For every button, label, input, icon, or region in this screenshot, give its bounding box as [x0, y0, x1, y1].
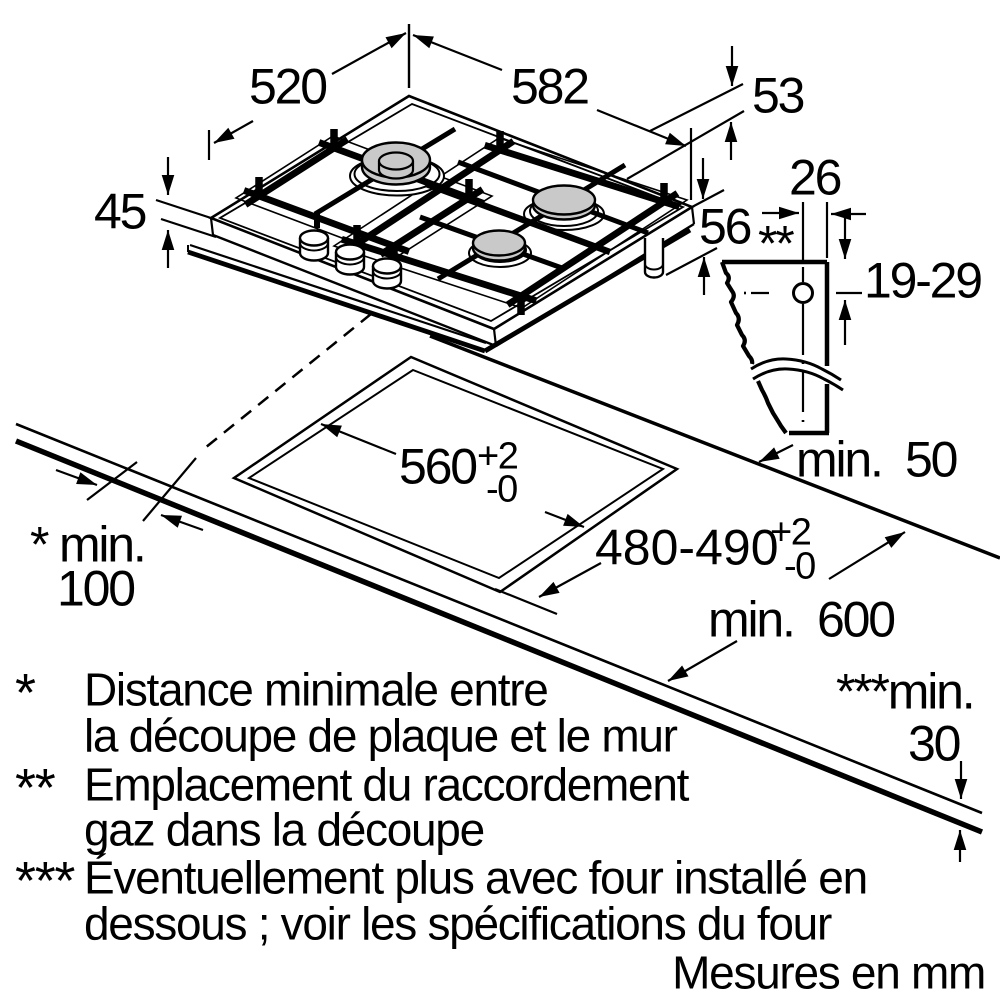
svg-text:gaz dans la découpe: gaz dans la découpe	[84, 804, 484, 856]
svg-text:dessous ; voir les spécificati: dessous ; voir les spécifications du fou…	[84, 898, 832, 950]
svg-text:Distance minimale entre: Distance minimale entre	[84, 664, 548, 716]
svg-text:-0: -0	[486, 469, 517, 511]
svg-text:56: 56	[699, 199, 751, 255]
svg-text:582: 582	[511, 59, 588, 115]
svg-text:***: ***	[15, 851, 75, 911]
svg-text:*: *	[15, 663, 36, 723]
svg-text:***min.: ***min.	[836, 664, 973, 720]
svg-text:100: 100	[57, 561, 134, 617]
svg-text:19-29: 19-29	[864, 253, 981, 309]
svg-text:**: **	[758, 216, 794, 272]
svg-text:min. 600: min. 600	[708, 592, 894, 648]
svg-text:min. 50: min. 50	[796, 432, 957, 488]
svg-text:560: 560	[399, 439, 476, 495]
svg-text:53: 53	[752, 68, 804, 124]
svg-text:-0: -0	[784, 546, 815, 588]
svg-text:520: 520	[249, 59, 326, 115]
svg-text:30: 30	[908, 716, 960, 772]
svg-text:**: **	[15, 758, 56, 818]
svg-text:Mesures en mm: Mesures en mm	[672, 947, 985, 999]
svg-text:26: 26	[789, 150, 841, 206]
svg-text:45: 45	[94, 184, 146, 240]
svg-text:480-490: 480-490	[595, 520, 779, 576]
svg-text:la découpe de plaque et le mur: la découpe de plaque et le mur	[84, 710, 678, 762]
svg-text:Éventuellement plus avec four: Éventuellement plus avec four installé e…	[84, 852, 867, 904]
